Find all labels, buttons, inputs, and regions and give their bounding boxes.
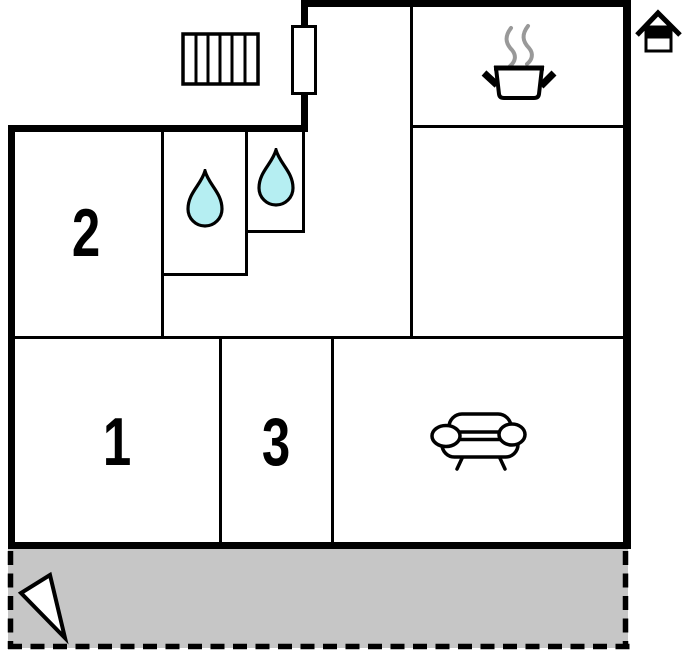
wall-main-horizontal (8, 336, 623, 339)
wall-outer-bottom (8, 542, 631, 549)
wall-kitchen-divider (410, 125, 623, 128)
terrace-dashed-border (4, 543, 634, 652)
wall-bathroom2-bottom (245, 230, 305, 233)
wall-outer-top (301, 0, 631, 7)
wall-bathroom2-right (302, 132, 305, 233)
wall-outer-right (623, 0, 631, 549)
cooking-pot-icon (478, 20, 563, 105)
room-label-2: 2 (72, 199, 100, 267)
steam-icon (507, 28, 515, 66)
steam-icon (524, 26, 532, 64)
wall-upper-left-top (8, 125, 308, 132)
water-drop-icon (186, 169, 224, 229)
house-logo-icon (632, 6, 686, 56)
room-label-3: 3 (262, 408, 290, 476)
north-arrow-icon (21, 575, 65, 638)
floor-plan: 2 1 3 (0, 0, 689, 652)
wall-bathroom1-bottom (161, 273, 248, 276)
wall-room1-right (219, 339, 222, 542)
wall-bathroom1-right (245, 132, 248, 276)
wall-room2-right (161, 132, 164, 339)
water-drop-icon (257, 148, 295, 208)
door-icon (291, 25, 317, 95)
wall-room3-right (331, 339, 334, 542)
room-label-1: 1 (103, 408, 131, 476)
pot-body (496, 68, 542, 98)
wall-hall-kitchen (410, 7, 413, 339)
sofa-icon (428, 408, 528, 474)
radiator-grill-icon (181, 32, 261, 87)
